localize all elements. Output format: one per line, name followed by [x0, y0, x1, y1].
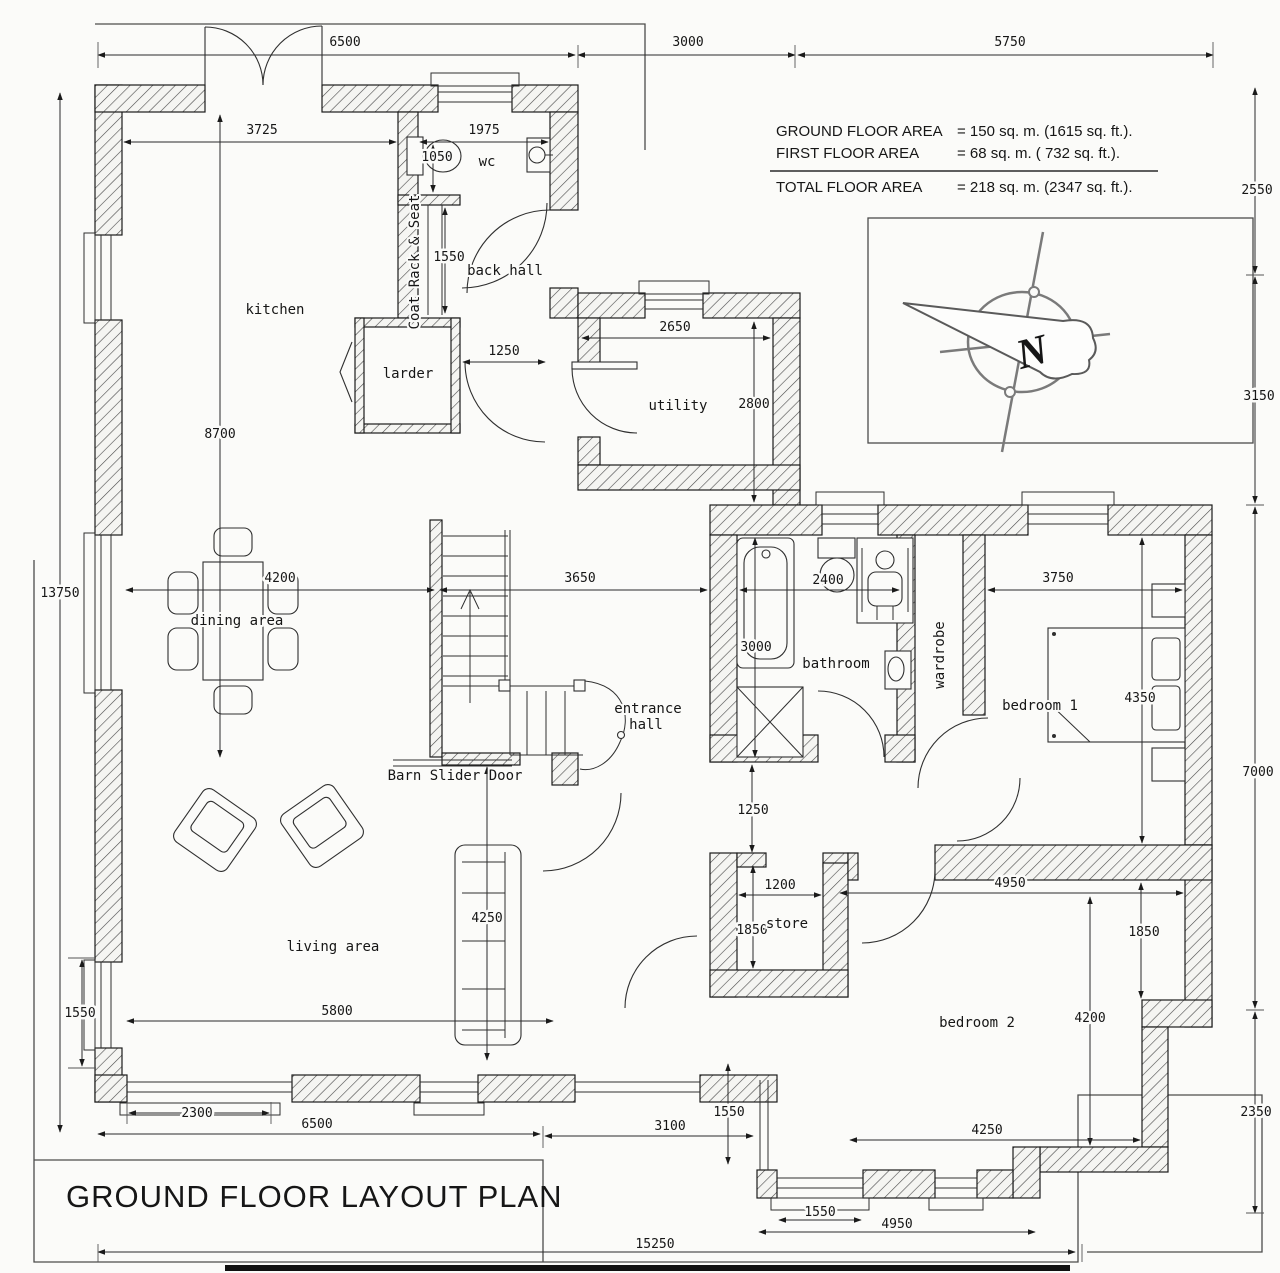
dim-bed2-4200: 4200: [1074, 1011, 1105, 1026]
dim-hall-3650: 3650: [564, 571, 595, 586]
table-row-label: GROUND FLOOR AREA: [776, 123, 943, 140]
dim-living-4250: 4250: [471, 911, 502, 926]
dim-bay-4950: 4950: [881, 1217, 912, 1232]
dim-utility-2800: 2800: [738, 397, 769, 412]
dim-right-7000: 7000: [1242, 765, 1273, 780]
dim-bath-2400: 2400: [812, 573, 843, 588]
dim-corridor-1550: 1550: [713, 1105, 744, 1120]
dim-larder-1250: 1250: [488, 344, 519, 359]
washbasin-wc: [527, 138, 553, 172]
dim-bath-3000: 3000: [740, 640, 771, 655]
dim-right-2550: 2550: [1241, 183, 1272, 198]
table-row-label: TOTAL FLOOR AREA: [776, 179, 922, 196]
room-label-bathroom: bathroom: [802, 656, 869, 672]
barn-slider-door-label: Barn Slider Door: [388, 768, 523, 784]
dim-right-2350: 2350: [1240, 1105, 1271, 1120]
dim-bed1-3750: 3750: [1042, 571, 1073, 586]
dim-bay-1550: 1550: [804, 1205, 835, 1220]
dim-left-13750: 13750: [40, 586, 79, 601]
room-label-utility: utility: [648, 398, 707, 414]
room-label-kitchen: kitchen: [245, 302, 304, 318]
dim-utility-2650: 2650: [659, 320, 690, 335]
table-row-value: = 150 sq. m. (1615 sq. ft.).: [957, 123, 1133, 140]
table-row-value: = 68 sq. m. ( 732 sq. ft.).: [957, 145, 1120, 162]
room-label-store: store: [766, 916, 808, 932]
table-row-label: FIRST FLOOR AREA: [776, 145, 919, 162]
dim-bottom-6500: 6500: [301, 1117, 332, 1132]
sofa: [455, 845, 521, 1045]
room-label-wardrobe: wardrobe: [932, 621, 948, 688]
room-label-wc: wc: [479, 154, 496, 170]
washbasin-bathroom: [885, 651, 911, 689]
north-arrow: N: [903, 232, 1110, 452]
shower-seat: [857, 538, 913, 623]
dim-top-6500: 6500: [329, 35, 360, 50]
room-label-larder: larder: [383, 366, 434, 382]
room-label-dining-area: dining area: [191, 613, 284, 629]
room-label-bedroom1: bedroom 1: [1002, 698, 1078, 714]
dim-top-3000: 3000: [672, 35, 703, 50]
dim-bed2-1850: 1850: [1128, 925, 1159, 940]
room-label-living-area: living area: [287, 939, 380, 955]
ground-floor-plan-drawing: N GROUND FLOOR AREA = 150 sq. m. (1615 s…: [0, 0, 1280, 1273]
floor-plan-sheet: N GROUND FLOOR AREA = 150 sq. m. (1615 s…: [0, 0, 1280, 1273]
armchair-left: [170, 785, 259, 874]
floor-area-table: GROUND FLOOR AREA = 150 sq. m. (1615 sq.…: [770, 123, 1158, 196]
dim-bed2-4250: 4250: [971, 1123, 1002, 1138]
dim-bed2-4950: 4950: [994, 876, 1025, 891]
table-row-value: = 218 sq. m. (2347 sq. ft.).: [957, 179, 1133, 196]
room-labels: kitchen wc back hall larder utility dini…: [191, 154, 1078, 1031]
dim-wc-1975: 1975: [468, 123, 499, 138]
dim-bed1-4350: 4350: [1124, 691, 1155, 706]
dim-kitchen-3725: 3725: [246, 123, 277, 138]
drawing-title: GROUND FLOOR LAYOUT PLAN: [66, 1179, 563, 1214]
dim-wc-1050: 1050: [421, 150, 452, 165]
staircase: [443, 530, 625, 770]
dim-store-1200: 1200: [764, 878, 795, 893]
dim-window-2300: 2300: [181, 1106, 212, 1121]
dim-coat-1550: 1550: [433, 250, 464, 265]
dim-right-3150: 3150: [1243, 389, 1274, 404]
dim-hall-1250: 1250: [737, 803, 768, 818]
dim-kitchen-8700: 8700: [204, 427, 235, 442]
dim-bottom-3100: 3100: [654, 1119, 685, 1134]
dim-top-5750: 5750: [994, 35, 1025, 50]
room-label-entrance-hall: hall: [629, 717, 663, 733]
room-label-entrance: entrance: [614, 701, 681, 717]
room-label-back-hall: back hall: [467, 263, 543, 279]
dim-total-15250: 15250: [635, 1237, 674, 1252]
dim-window-1550: 1550: [64, 1006, 95, 1021]
coat-rack-label: Coat Rack & Seat: [407, 195, 423, 330]
dim-dining-4200: 4200: [264, 571, 295, 586]
dim-store-1850: 1850: [736, 923, 767, 938]
armchair-right: [277, 781, 366, 870]
hot-press: [737, 687, 803, 757]
dim-living-5800: 5800: [321, 1004, 352, 1019]
bed-bedroom1: [1048, 584, 1185, 781]
room-label-bedroom2: bedroom 2: [939, 1015, 1015, 1031]
bottom-bar: [225, 1265, 1070, 1271]
